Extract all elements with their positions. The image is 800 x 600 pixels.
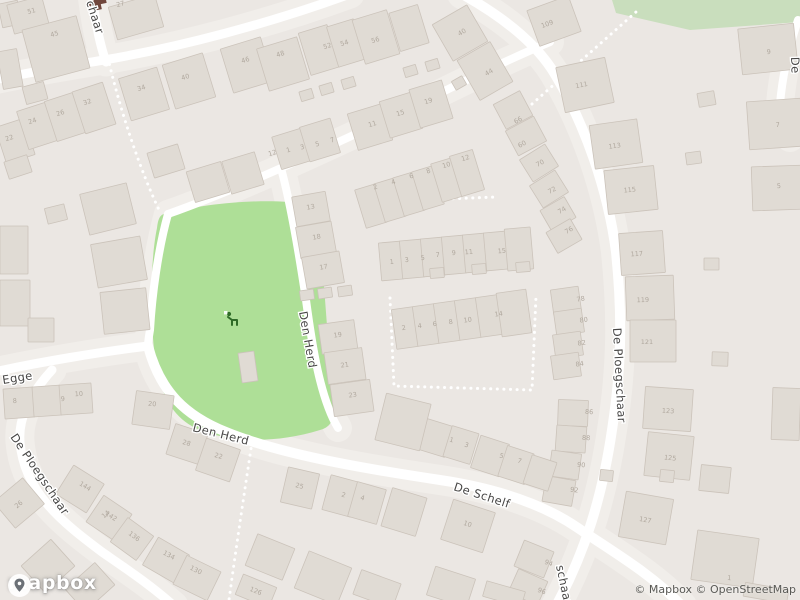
house-number-label: 23 bbox=[348, 390, 357, 399]
building bbox=[691, 530, 759, 588]
building bbox=[746, 98, 800, 150]
mapbox-logo[interactable]: mapbox bbox=[8, 574, 97, 593]
house-number-label: 90 bbox=[577, 461, 586, 470]
building bbox=[337, 285, 352, 297]
building bbox=[599, 469, 613, 481]
building bbox=[558, 399, 589, 426]
house-number-label: 113 bbox=[608, 141, 621, 151]
house-number-label: 92 bbox=[570, 485, 579, 494]
house-number-label: 125 bbox=[664, 453, 677, 462]
house-number-label: 84 bbox=[575, 359, 584, 368]
house-number-label: 11 bbox=[464, 248, 473, 257]
building bbox=[3, 387, 35, 419]
house-number-label: 82 bbox=[577, 338, 586, 347]
house-number-label: 14 bbox=[494, 309, 503, 318]
playground-icon-flag bbox=[224, 311, 227, 314]
house-number-label: 86 bbox=[585, 408, 594, 416]
house-number-label: 88 bbox=[582, 434, 591, 442]
building bbox=[0, 226, 28, 274]
building bbox=[0, 280, 30, 326]
building bbox=[697, 91, 716, 108]
map-canvas[interactable]: chaarEggeDen HerdDen HerdDe SchelfDe Plo… bbox=[0, 0, 800, 600]
house-number-label: 9 bbox=[451, 249, 456, 257]
house-number-label: 3 bbox=[404, 256, 409, 264]
building bbox=[100, 288, 150, 335]
building bbox=[685, 151, 702, 165]
mapbox-pin-icon bbox=[8, 574, 31, 597]
building bbox=[751, 165, 800, 211]
house-number-label: 10 bbox=[74, 390, 83, 399]
street-label: De bbox=[788, 57, 800, 74]
house-number-label: 115 bbox=[623, 185, 636, 194]
building bbox=[771, 388, 800, 441]
house-number-label: 121 bbox=[641, 338, 653, 346]
building bbox=[299, 289, 314, 301]
house-number-label: 10 bbox=[463, 315, 472, 324]
building bbox=[516, 261, 531, 272]
building bbox=[430, 267, 445, 278]
building bbox=[132, 391, 174, 430]
house-number-label: 13 bbox=[306, 202, 316, 211]
house-number-label: 1 bbox=[389, 258, 394, 266]
house-number-label: 123 bbox=[662, 407, 675, 416]
house-number-label: 5 bbox=[777, 182, 781, 190]
building bbox=[28, 318, 54, 342]
map-container: chaarEggeDen HerdDen HerdDe SchelfDe Plo… bbox=[0, 0, 800, 600]
map-attribution[interactable]: © Mapbox © OpenStreetMap bbox=[634, 583, 796, 596]
house-number-label: 17 bbox=[319, 262, 329, 271]
building bbox=[91, 236, 148, 288]
house-number-label: 20 bbox=[148, 400, 157, 409]
house-number-label: 7 bbox=[776, 121, 781, 129]
house-number-label: 78 bbox=[576, 294, 585, 303]
house-number-label: 21 bbox=[340, 360, 349, 369]
building bbox=[472, 263, 487, 274]
house-number-label: 19 bbox=[333, 330, 342, 339]
building bbox=[32, 385, 62, 417]
house-number-label: 8 bbox=[13, 397, 18, 405]
building bbox=[712, 352, 728, 367]
building bbox=[317, 287, 332, 299]
building bbox=[704, 258, 719, 270]
house-number-label: 7 bbox=[435, 251, 440, 259]
house-number-label: 119 bbox=[637, 296, 650, 304]
house-number-label: 18 bbox=[312, 232, 322, 241]
house-number-label: 9 bbox=[61, 395, 66, 403]
house-number-label: 117 bbox=[630, 250, 643, 259]
playground-icon-head bbox=[227, 312, 231, 316]
building bbox=[625, 275, 675, 321]
building bbox=[699, 465, 732, 494]
house-number-label: 80 bbox=[579, 315, 588, 324]
house-number-label: 5 bbox=[420, 254, 425, 262]
building bbox=[659, 469, 674, 482]
house-number-label: 9 bbox=[766, 48, 771, 56]
house-number-label: 15 bbox=[497, 247, 506, 256]
